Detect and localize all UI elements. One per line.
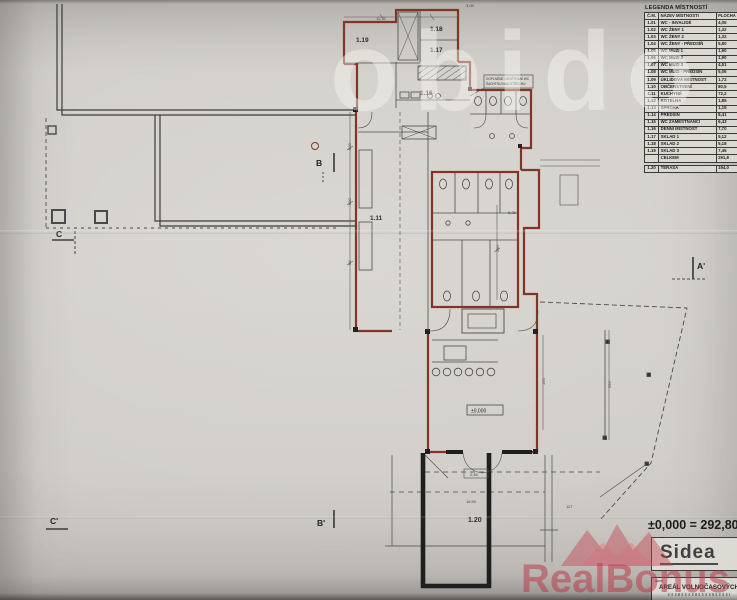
legend-total-row: CELKEM 291,8 xyxy=(645,155,737,162)
svg-text:3,05: 3,05 xyxy=(466,3,475,8)
elevation-datum: ±0,000 = 292,800 xyxy=(648,518,737,532)
sidea-logo-box: Sidea xyxy=(651,537,737,571)
existing-walls xyxy=(57,4,356,226)
svg-text:C': C' xyxy=(50,516,58,526)
legend-row: 1.05WC MUŽI 11,90 xyxy=(645,48,737,55)
svg-text:B: B xyxy=(316,158,322,168)
svg-text:B': B' xyxy=(317,518,325,528)
legend-header-row: Č.M. NÁZEV MÍSTNOSTI PLOCHA (m²) xyxy=(645,13,737,20)
project-name: AREÁL VOLNOČASOVÝCH xyxy=(655,584,737,591)
legend-title: LEGENDA MÍSTNOSTÍ xyxy=(645,5,737,11)
legend-row: 1.01WC - INVALIDÉ4,05 xyxy=(645,20,737,27)
legend-terrace-row: 1.20 TERASA 194,0 xyxy=(645,165,737,172)
svg-text:90: 90 xyxy=(347,260,352,265)
svg-text:250: 250 xyxy=(495,245,500,252)
legend-col-num: Č.M. xyxy=(645,13,659,20)
legend-table: Č.M. NÁZEV MÍSTNOSTI PLOCHA (m²) 1.01WC … xyxy=(644,12,737,163)
legend-row: 1.04WC ŽENY - PŘEDSÍŇ5,80 xyxy=(645,41,737,48)
akce-label: Akce: xyxy=(655,579,737,583)
note-text-line2: ŠACHTOU NAD STŘECHU xyxy=(486,81,526,86)
room-legend: LEGENDA MÍSTNOSTÍ Č.M. NÁZEV MÍSTNOSTI P… xyxy=(644,5,737,173)
legend-row: 1.06WC MUŽI 21,90 xyxy=(645,55,737,62)
room-label-1-17: 1.17 xyxy=(430,47,443,54)
legend-row: 1.12KOTELNA1,85 xyxy=(645,98,737,105)
legend-row: 1.17SKLAD 15,12 xyxy=(645,134,737,141)
svg-text:117: 117 xyxy=(566,504,573,509)
svg-text:A': A' xyxy=(697,261,705,271)
svg-text:500: 500 xyxy=(347,143,352,150)
svg-text:C: C xyxy=(56,229,62,239)
room-label-1-20: 1.20 xyxy=(468,517,482,524)
svg-text:2,45: 2,45 xyxy=(470,472,479,477)
svg-text:11,72: 11,72 xyxy=(376,16,386,21)
section-marker-a-prime: A' xyxy=(672,257,706,279)
section-marker-c: C xyxy=(52,229,75,255)
legend-row: 1.14PŘEDSÍŇ8,41 xyxy=(645,112,737,119)
sidea-logo-underline xyxy=(660,563,718,565)
legend-row: 1.11KUCHYNĚ72,2 xyxy=(645,91,737,98)
svg-text:600: 600 xyxy=(347,198,352,205)
svg-text:150: 150 xyxy=(541,378,546,385)
legend-col-area: PLOCHA (m²) xyxy=(716,13,737,20)
floor-plan-photo: DOPLNĚNÉ ODVĚTRÁNÍ WC ŠACHTOU NAD STŘECH… xyxy=(0,0,737,600)
room-label-1-18: 1.18 xyxy=(430,26,443,33)
room-fills xyxy=(432,90,531,307)
note-text-line1: DOPLNĚNÉ ODVĚTRÁNÍ WC xyxy=(486,76,530,81)
legend-row: 1.18SKLAD 25,18 xyxy=(645,141,737,148)
svg-text:6,25: 6,25 xyxy=(508,210,517,215)
level-marker: ±0,000 xyxy=(471,409,486,415)
legend-row: 1.10OBČERSTVENÍ80,5 xyxy=(645,84,737,91)
legend-row: 1.16DENNÍ MÍSTNOST7,70 xyxy=(645,126,737,133)
project-title-box: Akce: AREÁL VOLNOČASOVÝCH xyxy=(651,577,737,600)
floor-plan-drawing: DOPLNĚNÉ ODVĚTRÁNÍ WC ŠACHTOU NAD STŘECH… xyxy=(0,0,737,600)
section-marker-b: B xyxy=(316,153,334,184)
svg-text:16,90: 16,90 xyxy=(466,499,477,504)
sidea-logo: Sidea xyxy=(660,543,737,562)
legend-row: 1.19SKLAD 37,45 xyxy=(645,148,737,155)
legend-row: 1.07WC MUŽI 34,51 xyxy=(645,62,737,69)
room-label-1-19: 1.19 xyxy=(356,37,369,44)
room-label-1-11: 1.11 xyxy=(370,215,383,222)
section-marker-c-prime: C' xyxy=(46,516,68,529)
legend-row: 1.13SPRCHA1,15 xyxy=(645,105,737,112)
legend-row: 1.03WC ŽENY 21,32 xyxy=(645,34,737,41)
svg-text:595: 595 xyxy=(607,381,612,388)
legend-row: 1.15WC ZAMĚSTNANCI6,43 xyxy=(645,119,737,126)
section-marker-b-prime: B' xyxy=(317,510,334,528)
project-subline-illegible xyxy=(668,593,730,597)
legend-row: 1.02WC ŽENY 11,32 xyxy=(645,27,737,34)
legend-col-name: NÁZEV MÍSTNOSTI xyxy=(659,13,716,20)
legend-row: 1.09ÚKLIDOVÁ MÍSTNOST1,72 xyxy=(645,77,737,84)
legend-row: 1.08WC MUŽI - PŘEDSÍŇ5,06 xyxy=(645,69,737,76)
legend-terrace-table: 1.20 TERASA 194,0 xyxy=(644,165,737,173)
property-boundary xyxy=(46,118,687,562)
room-label-1-16: 1.16 xyxy=(420,90,433,97)
